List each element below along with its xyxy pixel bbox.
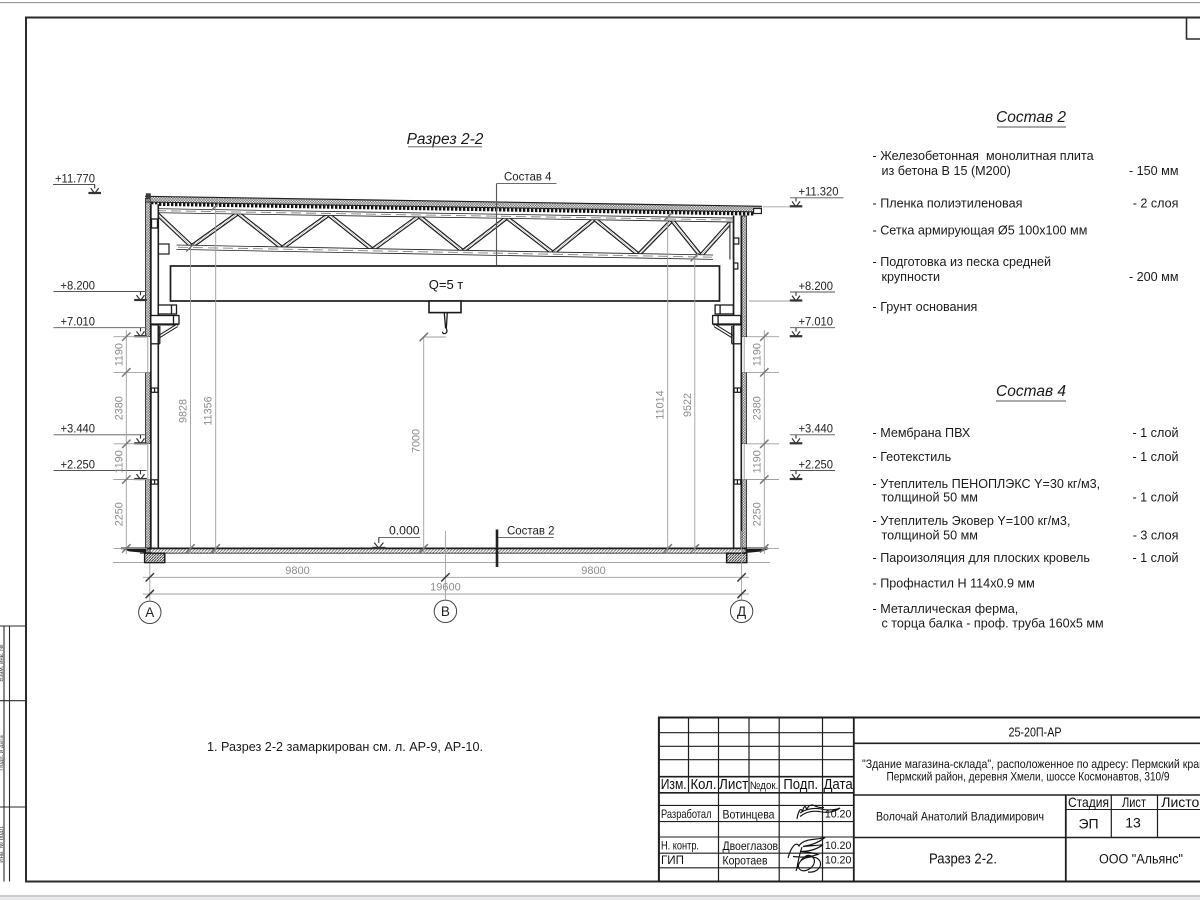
svg-text:В: В xyxy=(441,604,450,619)
svg-text:Инв. № подл.: Инв. № подл. xyxy=(0,825,5,863)
svg-text:0.000: 0.000 xyxy=(389,524,420,538)
svg-text:Разработал: Разработал xyxy=(661,808,712,821)
svg-text:1. Разрез 2-2 замаркирован см.: 1. Разрез 2-2 замаркирован см. л. АР-9, … xyxy=(207,739,483,754)
svg-text:толщиной 50 мм: толщиной 50 мм xyxy=(882,529,978,543)
svg-text:из бетона В 15 (М200): из бетона В 15 (М200) xyxy=(882,164,1011,178)
svg-text:Разрез 2-2.: Разрез 2-2. xyxy=(929,852,997,868)
svg-text:- Пароизоляция для плоских кро: - Пароизоляция для плоских кровель xyxy=(873,551,1091,565)
svg-text:- 1 слой: - 1 слой xyxy=(1132,450,1178,464)
svg-text:Вотинцева: Вотинцева xyxy=(723,807,775,821)
svg-text:+2.250: +2.250 xyxy=(799,457,834,471)
svg-text:25-20П-АР: 25-20П-АР xyxy=(1009,725,1062,740)
svg-text:7000: 7000 xyxy=(411,429,423,453)
svg-text:Лист: Лист xyxy=(1122,794,1146,810)
svg-text:Листов: Листов xyxy=(1161,794,1200,810)
svg-text:2380: 2380 xyxy=(113,396,125,420)
svg-text:Взам. инв. №: Взам. инв. № xyxy=(0,644,5,681)
svg-text:Двоеглазов: Двоеглазов xyxy=(723,839,779,853)
svg-text:1190: 1190 xyxy=(751,450,763,473)
svg-text:- Утеплитель ПЕНОПЛЭКС Y=30 кг: - Утеплитель ПЕНОПЛЭКС Y=30 кг/м3, xyxy=(873,477,1101,491)
svg-text:Кол.: Кол. xyxy=(691,777,717,793)
svg-text:Состав 4: Состав 4 xyxy=(504,170,552,184)
svg-text:- Сетка армирующая Ø5 100х100: - Сетка армирующая Ø5 100х100 мм xyxy=(873,224,1088,238)
svg-text:Изм.: Изм. xyxy=(661,777,687,793)
svg-text:Дата: Дата xyxy=(823,777,853,793)
svg-text:13: 13 xyxy=(1125,815,1141,831)
svg-text:9800: 9800 xyxy=(581,565,605,577)
svg-text:1190: 1190 xyxy=(113,343,125,366)
svg-text:А: А xyxy=(145,605,154,620)
svg-text:толщиной 50 мм: толщиной 50 мм xyxy=(882,491,978,505)
svg-text:Стадия: Стадия xyxy=(1068,794,1109,810)
svg-text:- Подготовка из песка средней: - Подготовка из песка средней xyxy=(873,255,1052,269)
svg-text:Подп. и дата: Подп. и дата xyxy=(0,735,5,771)
svg-text:11356: 11356 xyxy=(203,396,215,425)
svg-text:+8.200: +8.200 xyxy=(799,279,834,293)
svg-text:- 2 слоя: - 2 слоя xyxy=(1133,197,1179,211)
svg-text:ГИП: ГИП xyxy=(661,854,684,867)
svg-text:Коротаев: Коротаев xyxy=(723,854,768,868)
svg-text:№док.: №док. xyxy=(750,780,778,792)
svg-text:- 150 мм: - 150 мм xyxy=(1129,164,1179,178)
svg-text:9522: 9522 xyxy=(682,393,694,417)
svg-text:- Геотекстиль: - Геотекстиль xyxy=(873,450,952,464)
svg-text:+7.010: +7.010 xyxy=(61,315,96,329)
svg-text:- Железобетонная монолитная п: - Железобетонная монолитная плита xyxy=(873,149,1094,163)
svg-text:- Металлическая ферма,: - Металлическая ферма, xyxy=(873,602,1019,616)
svg-text:Н. контр.: Н. контр. xyxy=(661,840,699,853)
svg-text:+3.440: +3.440 xyxy=(799,422,834,436)
svg-text:- 1 слой: - 1 слой xyxy=(1132,426,1178,440)
svg-text:с торца балка - проф. труба 16: с торца балка - проф. труба 160х5 мм xyxy=(882,617,1104,631)
svg-text:+8.200: +8.200 xyxy=(61,278,96,292)
svg-text:9828: 9828 xyxy=(178,399,190,423)
svg-text:+11.770: +11.770 xyxy=(55,171,95,185)
svg-text:Волочай Анатолий Владимирович: Волочай Анатолий Владимирович xyxy=(876,810,1044,824)
svg-text:- 1 слой: - 1 слой xyxy=(1132,551,1178,565)
svg-text:10.20: 10.20 xyxy=(825,840,852,852)
svg-text:11014: 11014 xyxy=(655,390,667,419)
svg-text:19600: 19600 xyxy=(430,582,461,594)
svg-text:- 3 слоя: - 3 слоя xyxy=(1133,529,1179,543)
svg-text:Пермский район, деревня Хмели,: Пермский район, деревня Хмели, шоссе Кос… xyxy=(887,769,1170,783)
svg-text:ЭП: ЭП xyxy=(1078,816,1098,832)
svg-text:- 1 слой: - 1 слой xyxy=(1132,491,1178,505)
svg-text:крупности: крупности xyxy=(882,270,941,284)
svg-text:1190: 1190 xyxy=(751,343,763,366)
svg-text:Разрез 2-2: Разрез 2-2 xyxy=(407,131,484,148)
svg-text:+3.440: +3.440 xyxy=(61,422,96,436)
svg-text:Состав 4: Состав 4 xyxy=(996,383,1066,400)
svg-text:Состав 2: Состав 2 xyxy=(996,109,1066,126)
svg-text:1190: 1190 xyxy=(113,450,125,473)
svg-text:2250: 2250 xyxy=(113,502,125,526)
svg-text:Д: Д xyxy=(737,604,746,619)
svg-text:- 200 мм: - 200 мм xyxy=(1129,270,1179,284)
svg-text:+2.250: +2.250 xyxy=(61,457,96,471)
svg-text:- Мембрана ПВХ: - Мембрана ПВХ xyxy=(873,426,971,440)
svg-text:ООО "Альянс": ООО "Альянс" xyxy=(1099,852,1183,867)
svg-text:- Профнастил Н 114х0.9 мм: - Профнастил Н 114х0.9 мм xyxy=(873,577,1035,591)
svg-text:- Грунт основания: - Грунт основания xyxy=(873,300,978,314)
svg-text:- Пленка полиэтиленовая: - Пленка полиэтиленовая xyxy=(873,197,1023,211)
svg-text:2250: 2250 xyxy=(751,502,763,526)
svg-text:Подп.: Подп. xyxy=(783,777,818,793)
svg-text:- Утеплитель Эковер Y=100 кг/м: - Утеплитель Эковер Y=100 кг/м3, xyxy=(873,514,1071,528)
svg-text:+7.010: +7.010 xyxy=(799,315,834,329)
svg-text:Q=5 т: Q=5 т xyxy=(429,277,464,292)
svg-text:Состав 2: Состав 2 xyxy=(507,524,555,538)
svg-text:2380: 2380 xyxy=(751,396,763,420)
svg-text:Лист: Лист xyxy=(719,777,749,793)
svg-text:+11.320: +11.320 xyxy=(799,185,839,199)
svg-text:9800: 9800 xyxy=(285,565,309,577)
svg-text:10.20: 10.20 xyxy=(825,855,852,867)
